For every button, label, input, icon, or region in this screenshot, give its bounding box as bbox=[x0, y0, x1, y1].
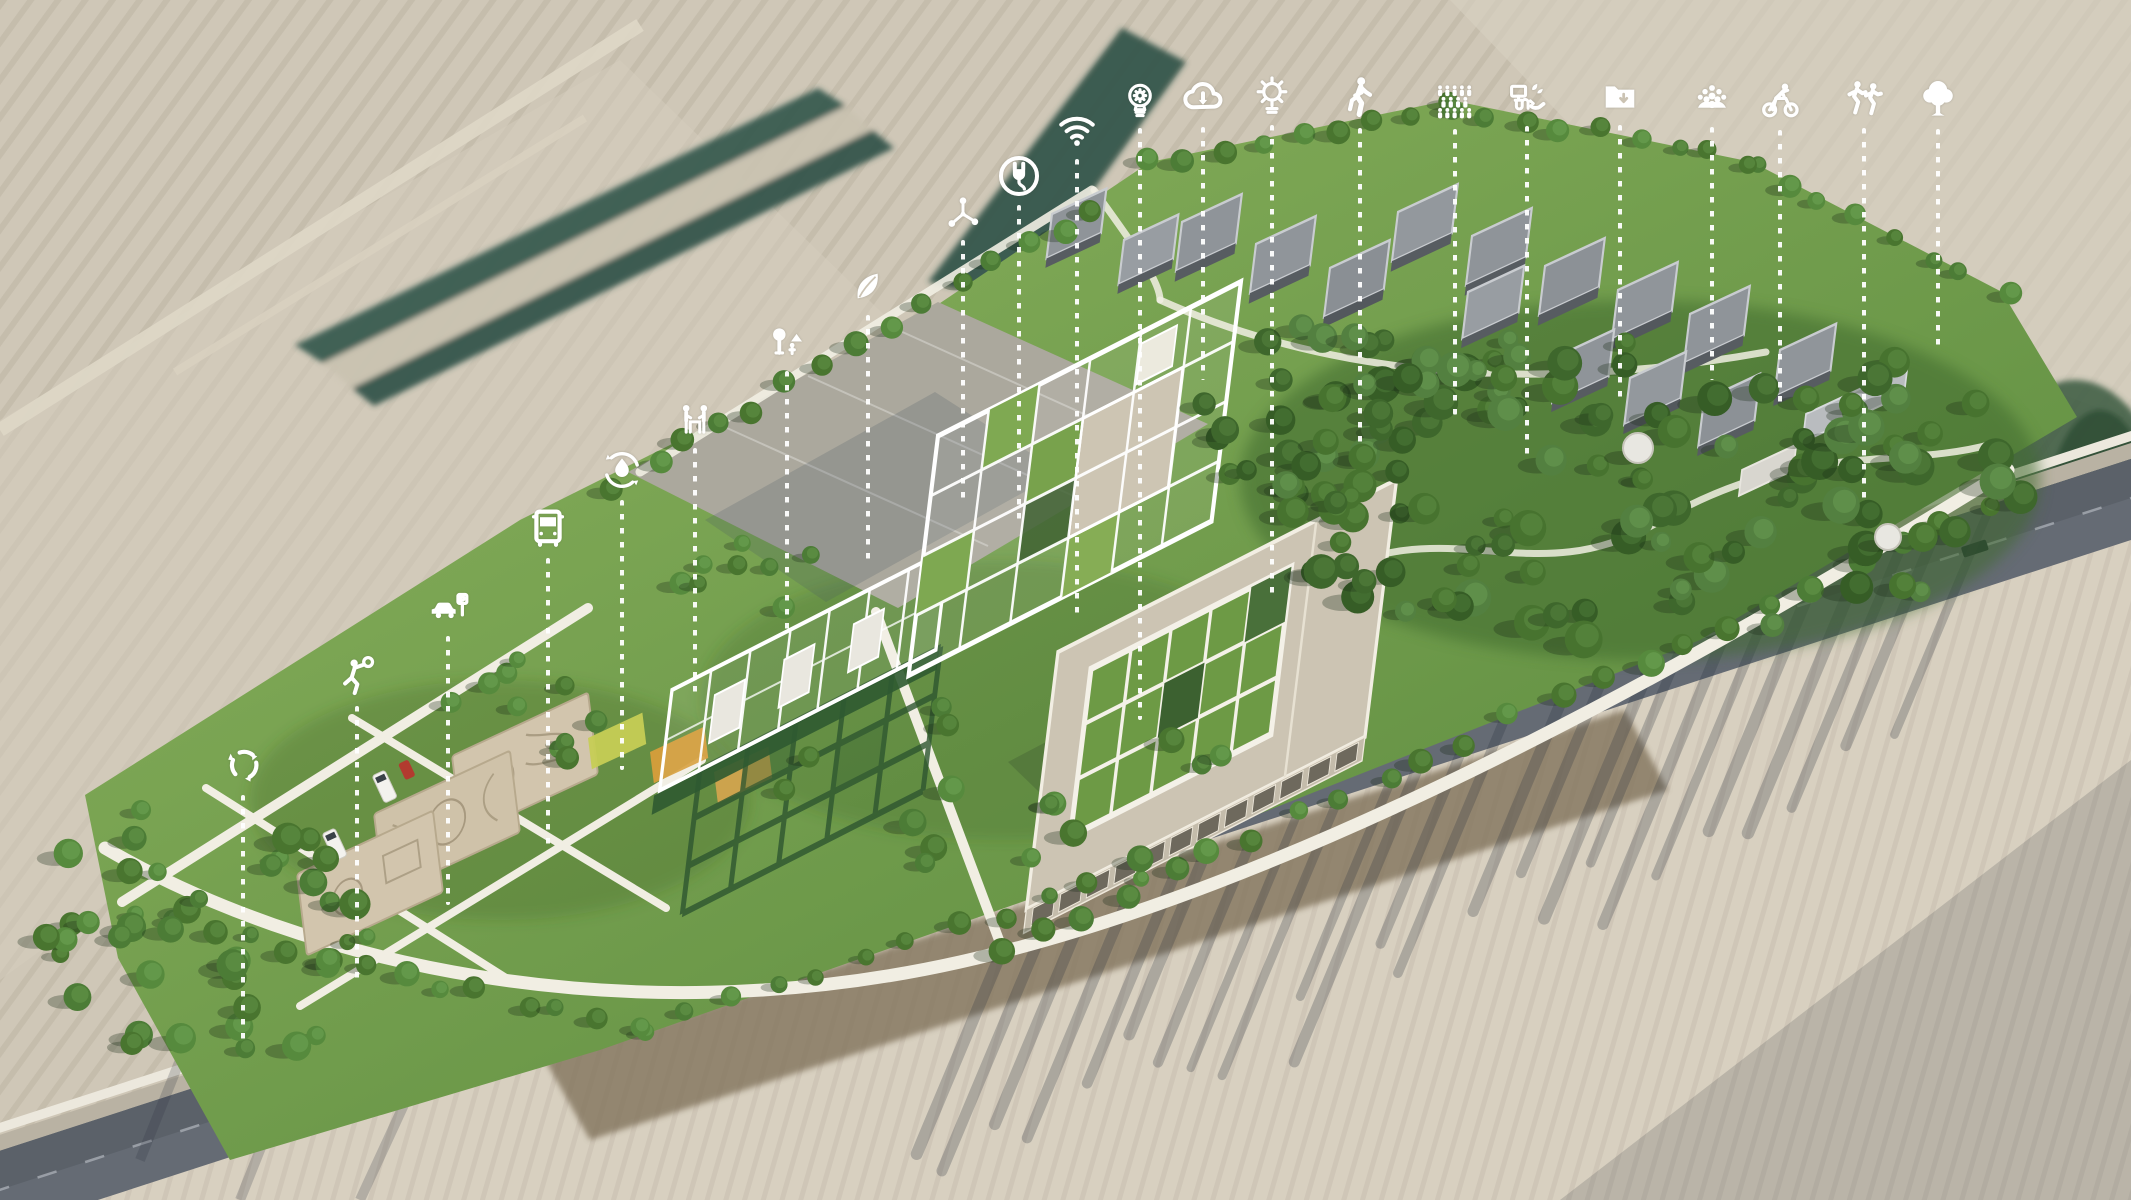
scenery-rendering bbox=[0, 0, 2131, 1200]
aerial-masterplan-rendering bbox=[0, 0, 2131, 1200]
